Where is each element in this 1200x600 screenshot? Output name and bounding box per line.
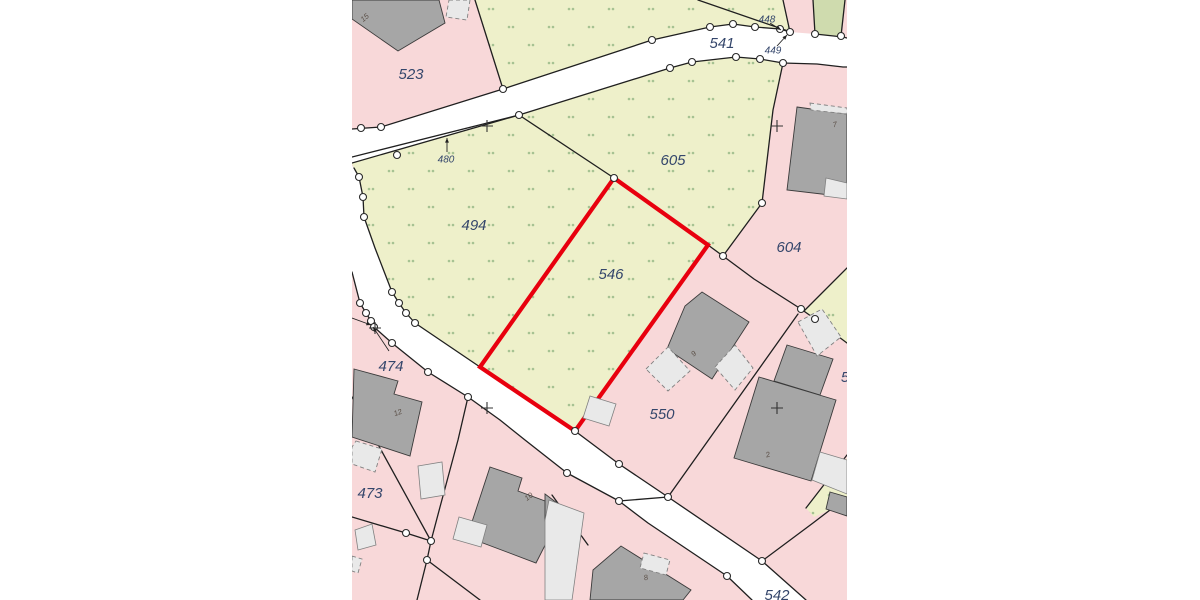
parcel-label-546: 546 bbox=[598, 266, 624, 283]
parcel-label-473: 473 bbox=[357, 485, 383, 502]
parcel-label-542: 542 bbox=[764, 587, 790, 600]
survey-point bbox=[363, 310, 370, 317]
survey-point bbox=[358, 125, 365, 132]
survey-point bbox=[389, 340, 396, 347]
survey-point bbox=[616, 461, 623, 468]
survey-point bbox=[689, 59, 696, 66]
survey-point bbox=[572, 428, 579, 435]
parcel-label-448: 448 bbox=[759, 15, 776, 26]
survey-point bbox=[428, 538, 435, 545]
parcel-label-494: 494 bbox=[461, 217, 486, 234]
parcel-label-5-partial: 5 bbox=[841, 369, 850, 386]
survey-point bbox=[665, 494, 672, 501]
shed-474 bbox=[418, 462, 445, 499]
survey-point bbox=[780, 60, 787, 67]
survey-point bbox=[361, 214, 368, 221]
survey-point bbox=[838, 33, 845, 40]
survey-point bbox=[752, 24, 759, 31]
survey-point bbox=[378, 124, 385, 131]
annex-building-15 bbox=[446, 0, 470, 20]
survey-point bbox=[424, 557, 431, 564]
survey-point bbox=[611, 175, 618, 182]
survey-point bbox=[396, 300, 403, 307]
survey-point bbox=[389, 289, 396, 296]
survey-point bbox=[812, 31, 819, 38]
survey-point bbox=[357, 300, 364, 307]
survey-point bbox=[616, 498, 623, 505]
survey-point bbox=[412, 320, 419, 327]
survey-point bbox=[516, 112, 523, 119]
parcel-label-449: 449 bbox=[765, 46, 782, 57]
parcel-label-541: 541 bbox=[709, 35, 734, 52]
survey-point bbox=[812, 316, 819, 323]
survey-point bbox=[403, 530, 410, 537]
survey-point bbox=[798, 306, 805, 313]
survey-point bbox=[759, 200, 766, 207]
survey-point bbox=[707, 24, 714, 31]
survey-point bbox=[759, 558, 766, 565]
survey-point bbox=[730, 21, 737, 28]
parcel-label-480: 480 bbox=[438, 155, 455, 166]
parcel-label-605: 605 bbox=[660, 152, 686, 169]
survey-point bbox=[564, 470, 571, 477]
survey-point bbox=[394, 152, 401, 159]
survey-point bbox=[356, 174, 363, 181]
survey-point bbox=[649, 37, 656, 44]
survey-point bbox=[425, 369, 432, 376]
parcel-label-550: 550 bbox=[649, 406, 675, 423]
survey-point bbox=[500, 86, 507, 93]
survey-point bbox=[360, 194, 367, 201]
survey-point bbox=[787, 29, 794, 36]
survey-point bbox=[403, 310, 410, 317]
survey-point bbox=[724, 573, 731, 580]
parcel-label-604: 604 bbox=[776, 239, 801, 256]
survey-point bbox=[733, 54, 740, 61]
map-layers: 5235416054945466044745504735425448449480… bbox=[352, 0, 850, 600]
cadastral-map-canvas[interactable]: 5235416054945466044745504735425448449480… bbox=[0, 0, 1200, 600]
map-viewport: 5235416054945466044745504735425448449480… bbox=[0, 0, 1200, 600]
survey-point bbox=[465, 394, 472, 401]
parcel-sage-topright[interactable] bbox=[813, 0, 845, 36]
survey-point bbox=[667, 65, 674, 72]
parcel-label-474: 474 bbox=[378, 358, 403, 375]
survey-point bbox=[757, 56, 764, 63]
survey-point bbox=[720, 253, 727, 260]
parcel-label-523: 523 bbox=[398, 66, 424, 83]
